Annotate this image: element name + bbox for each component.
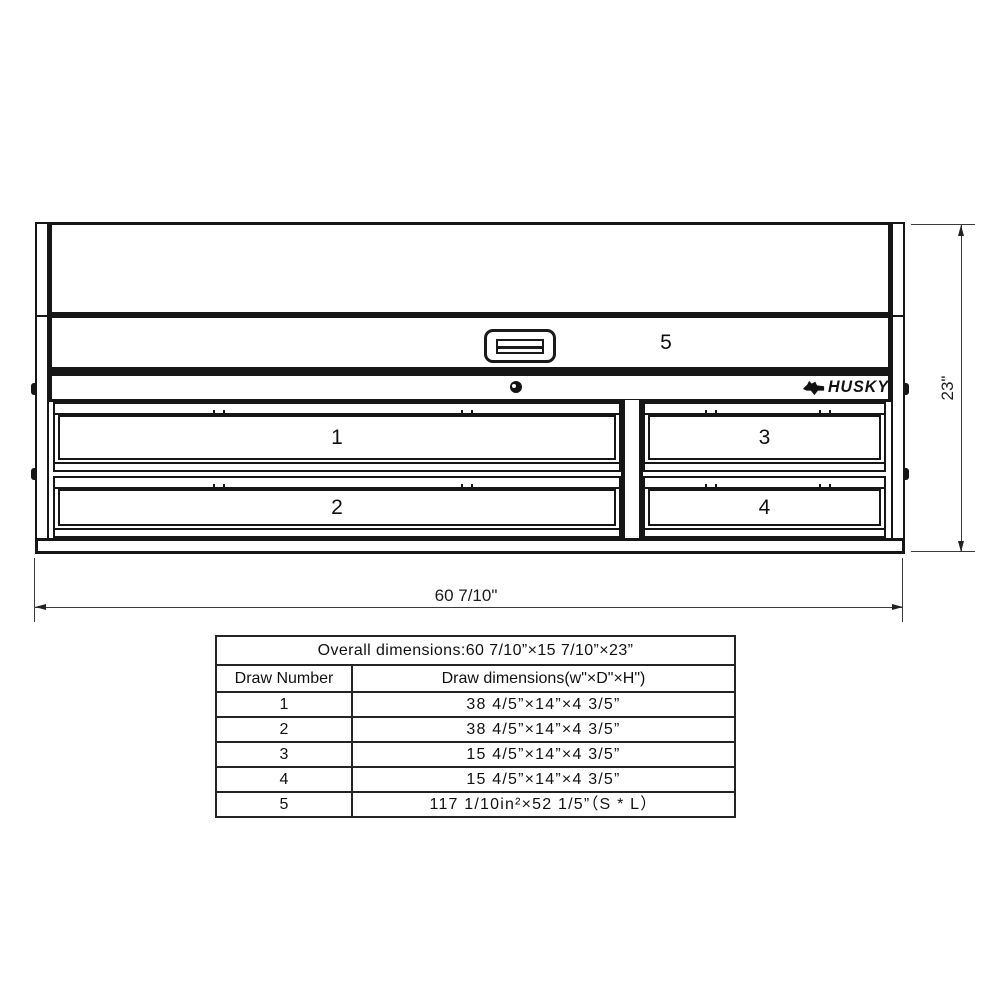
drawer-2-face: 2	[58, 489, 616, 526]
table-row-drawer-5: 5 117 1/10in²×52 1/5”（S * L）	[217, 793, 734, 816]
rail-tick-mark	[213, 484, 225, 489]
drawer-number-cell: 5	[217, 793, 353, 816]
left-side-panel	[35, 222, 49, 554]
width-dim-arrow-left	[35, 604, 46, 610]
drawer-1-face: 1	[58, 415, 616, 460]
drawer-4-label: 4	[759, 496, 771, 520]
drawer-dimensions-cell: 38 4/5”×14”×4 3/5”	[353, 718, 734, 741]
drawer-number-cell: 4	[217, 768, 353, 791]
chest-base	[35, 538, 905, 554]
column-header-draw-number: Draw Number	[217, 666, 353, 691]
technical-drawing-page: 5 HUSKY 1	[0, 0, 1000, 1000]
handle-bar	[498, 346, 542, 349]
drawer-number-cell: 2	[217, 718, 353, 741]
drawer-2: 2	[53, 476, 621, 538]
drawer-3: 3	[643, 402, 886, 472]
height-dimension-line	[961, 225, 962, 552]
height-extension-line-bottom	[911, 551, 975, 552]
drawer-5-label: 5	[653, 331, 679, 355]
width-dimension-label: 60 7/10"	[406, 586, 526, 606]
drawer-3-slide-rail-top	[645, 404, 884, 415]
rail-tick-mark	[461, 410, 473, 415]
rail-tick-mark	[461, 484, 473, 489]
drawer-5-front: 5	[49, 315, 891, 373]
husky-logo: HUSKY	[763, 378, 889, 397]
right-panel-divider-line	[893, 315, 903, 317]
chest-lid	[49, 222, 891, 315]
drawer-4-face: 4	[648, 489, 881, 526]
right-hinge-bump-lower	[904, 468, 909, 480]
tool-chest-drawing: 5 HUSKY 1	[0, 0, 1000, 1000]
height-dim-arrow-top	[958, 225, 964, 236]
drawer-2-slide-rail-top	[55, 478, 619, 489]
left-panel-divider-line	[37, 315, 47, 317]
overall-dimensions-header: Overall dimensions:60 7/10”×15 7/10”×23”	[217, 637, 734, 666]
table-row-drawer-2: 2 38 4/5”×14”×4 3/5”	[217, 718, 734, 743]
width-extension-line-left	[34, 558, 35, 622]
width-dim-arrow-right	[892, 604, 903, 610]
drawer-1-slide-rail-top	[55, 404, 619, 415]
drawer-1-slide-rail-bottom	[55, 462, 619, 470]
table-row-drawer-1: 1 38 4/5”×14”×4 3/5”	[217, 693, 734, 718]
drawer-4: 4	[643, 476, 886, 538]
handle	[484, 329, 556, 363]
height-extension-line-top	[911, 224, 975, 225]
right-side-panel	[891, 222, 905, 554]
drawer-dimensions-cell: 117 1/10in²×52 1/5”（S * L）	[353, 793, 734, 816]
drawer-bank-divider	[621, 400, 643, 538]
drawer-dimensions-cell: 15 4/5”×14”×4 3/5”	[353, 768, 734, 791]
drawer-dimensions-cell: 38 4/5”×14”×4 3/5”	[353, 693, 734, 716]
height-dim-arrow-bottom	[958, 541, 964, 552]
drawer-3-label: 3	[759, 426, 771, 450]
rail-tick-mark	[819, 410, 831, 415]
drawer-1-label: 1	[331, 426, 343, 450]
drawer-number-cell: 1	[217, 693, 353, 716]
rail-tick-mark	[705, 484, 717, 489]
rail-tick-mark	[705, 410, 717, 415]
table-row-drawer-3: 3 15 4/5”×14”×4 3/5”	[217, 743, 734, 768]
drawer-3-face: 3	[648, 415, 881, 460]
drawer-2-label: 2	[331, 496, 343, 520]
height-dimension-label: 23"	[937, 366, 959, 410]
keyhole-lock-icon	[510, 381, 522, 393]
width-dimension-line	[35, 607, 903, 608]
drawer-dimensions-cell: 15 4/5”×14”×4 3/5”	[353, 743, 734, 766]
left-hinge-bump-upper	[31, 383, 36, 395]
husky-logo-text: HUSKY	[828, 378, 889, 397]
table-row-drawer-4: 4 15 4/5”×14”×4 3/5”	[217, 768, 734, 793]
brand-band: HUSKY	[49, 373, 891, 402]
rail-tick-mark	[213, 410, 225, 415]
husky-dog-icon	[802, 380, 825, 396]
drawer-2-slide-rail-bottom	[55, 528, 619, 536]
width-extension-line-right	[902, 558, 903, 622]
rail-tick-mark	[819, 484, 831, 489]
drawer-3-slide-rail-bottom	[645, 462, 884, 470]
drawer-1: 1	[53, 402, 621, 472]
drawer-4-slide-rail-bottom	[645, 528, 884, 536]
column-header-draw-dimensions: Draw dimensions(w"×D"×H")	[353, 666, 734, 691]
right-hinge-bump-upper	[904, 383, 909, 395]
handle-recess	[496, 339, 544, 354]
left-hinge-bump-lower	[31, 468, 36, 480]
drawer-number-cell: 3	[217, 743, 353, 766]
keyhole-slot	[512, 384, 516, 388]
table-column-headers: Draw Number Draw dimensions(w"×D"×H")	[217, 666, 734, 693]
dimensions-table: Overall dimensions:60 7/10”×15 7/10”×23”…	[215, 635, 736, 818]
drawer-4-slide-rail-top	[645, 478, 884, 489]
